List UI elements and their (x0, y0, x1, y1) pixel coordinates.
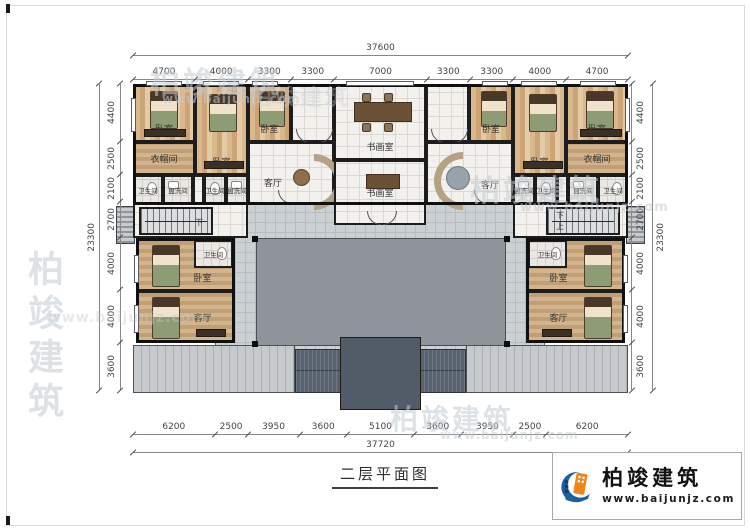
room-label: 盥洗间 (514, 185, 534, 195)
room-living: 客厅 (248, 142, 334, 205)
dim-segment: 2100 (103, 175, 120, 203)
dim-segment: 4400 (632, 84, 649, 142)
dim-value: 23300 (656, 223, 666, 252)
dim-value: 2100 (107, 177, 117, 200)
dim-bottom-segments: 620025003950360051003600395025006200 (133, 419, 628, 435)
window-icon (252, 81, 278, 86)
room-living: 客厅 (526, 291, 625, 343)
window-icon (203, 81, 239, 86)
bed-icon (152, 245, 180, 287)
chair-icon (362, 93, 371, 102)
dim-left-segments: 4400250021002700400040003600 (103, 84, 121, 390)
door-arc-icon (431, 129, 445, 143)
room-bedroom: 卧室 (195, 84, 248, 175)
corner-mark (6, 516, 10, 525)
dim-right-segments: 4400250021002700400040003600 (631, 84, 649, 390)
desk-icon (354, 102, 412, 122)
room-bedroom: 卧室 (133, 84, 195, 142)
dim-value: 37720 (366, 440, 395, 452)
room-bathroom: 卫生间 (528, 240, 567, 268)
room-art-studio: 书画室 (334, 160, 426, 225)
dim-value: 2100 (636, 177, 646, 200)
column-dot (504, 236, 510, 242)
table-icon (293, 169, 310, 186)
column-dot (252, 236, 258, 242)
room-label: 卫生间 (538, 249, 558, 259)
dim-value: 2500 (518, 422, 541, 432)
door-arc-icon (319, 129, 333, 143)
dim-segment: 6200 (546, 419, 628, 434)
dim-value: 6200 (162, 422, 185, 432)
courtyard (256, 238, 506, 346)
window-icon (346, 81, 414, 86)
room-bedroom: 卧室 (469, 84, 513, 142)
window-icon (482, 81, 508, 86)
tv-cabinet-icon (580, 129, 622, 137)
dim-segment: 2500 (513, 419, 546, 434)
dim-segment: 3300 (248, 62, 291, 79)
room-label: 卧室 (549, 271, 567, 284)
dim-value: 3600 (312, 422, 335, 432)
dim-top-segments: 470040003300330070003300330040004700 (133, 62, 628, 80)
room-bathroom: 卫生间 (598, 175, 628, 205)
hall-cell (557, 175, 568, 205)
floor-plan-sheet: 柏竣建筑 www.baijunjz.com 柏竣建筑 柏竣建筑 www.baij… (0, 0, 750, 530)
dim-value: 3300 (437, 67, 460, 77)
dim-segment: 4000 (632, 238, 649, 291)
room-label: 卫生间 (536, 185, 556, 195)
stairs-right: 下 上 (546, 207, 620, 235)
room-label: 盥洗间 (227, 185, 247, 195)
dim-right-total: 23300 (652, 84, 668, 390)
dim-value: 3300 (480, 67, 503, 77)
bed-icon (584, 297, 612, 339)
dim-value: 3950 (262, 422, 285, 432)
door-arc-icon (296, 129, 310, 143)
dim-value: 4400 (107, 101, 117, 124)
dim-segment: 3600 (632, 343, 649, 390)
terrace-right (466, 345, 628, 393)
room-washroom: 盥洗间 (513, 175, 535, 205)
bed-icon (209, 94, 237, 132)
chair-icon (384, 93, 393, 102)
room-bathroom: 卫生间 (535, 175, 557, 205)
dim-value: 2700 (107, 208, 117, 231)
dim-segment: 3300 (470, 62, 513, 79)
logo-brand: 柏竣建筑 (602, 467, 735, 490)
dresser-icon (523, 161, 563, 169)
dim-segment: 4000 (513, 62, 566, 79)
chair-icon (362, 123, 371, 132)
dim-segment: 4700 (133, 62, 195, 79)
dim-value: 4000 (636, 252, 646, 275)
room-washroom: 盥洗间 (226, 175, 248, 205)
dim-value: 23300 (87, 223, 97, 252)
dim-segment: 3950 (248, 419, 300, 434)
dim-segment: 6200 (133, 419, 215, 434)
bed-icon (586, 91, 614, 129)
dim-value: 4000 (107, 305, 117, 328)
dim-value: 3300 (301, 67, 324, 77)
living-room-entry (291, 84, 334, 142)
dim-segment: 2700 (632, 202, 649, 237)
door-arc-icon (367, 211, 381, 225)
dim-value: 4400 (636, 101, 646, 124)
window-icon (134, 305, 139, 333)
door-arc-icon (454, 129, 468, 143)
logo-text: 柏竣建筑 www.baijunjz.com (602, 467, 735, 504)
dim-value: 5100 (369, 422, 392, 432)
dim-segment: 3600 (103, 343, 120, 390)
room-label: 卫生间 (603, 185, 623, 195)
dim-segment: 5100 (347, 419, 414, 434)
room-washroom: 盥洗间 (568, 175, 598, 205)
column-dot (504, 341, 510, 347)
dim-value: 3300 (258, 67, 281, 77)
room-cloakroom: 衣帽间 (566, 142, 628, 175)
dim-value: 3950 (476, 422, 499, 432)
dim-segment: 7000 (334, 62, 426, 79)
company-logo: 柏竣建筑 www.baijunjz.com (552, 452, 742, 520)
dim-value: 3600 (107, 355, 117, 378)
room-label: 盥洗间 (168, 185, 188, 195)
dresser-icon (542, 329, 572, 337)
desk-icon (366, 174, 400, 189)
dim-bottom-total: 37720 (133, 437, 628, 453)
stairs-label: 下 (195, 217, 203, 228)
room-living: 客厅 (426, 142, 513, 205)
bed-icon (584, 245, 612, 287)
dresser-icon (204, 161, 244, 169)
room-bathroom: 卫生间 (204, 175, 226, 205)
stairs-label: 下 (556, 210, 564, 221)
room-bedroom: 卧室 (513, 84, 566, 175)
dim-value: 2500 (107, 147, 117, 170)
dim-segment: 3300 (291, 62, 334, 79)
door-arc-icon (383, 211, 397, 225)
drawing-title: 二层平面图 (280, 463, 490, 489)
window-icon (134, 255, 139, 283)
column-dot (252, 341, 258, 347)
dim-segment: 2500 (632, 142, 649, 175)
window-icon (623, 305, 628, 333)
window-icon (131, 98, 136, 132)
room-label: 卫生间 (204, 249, 224, 259)
chair-icon (384, 123, 393, 132)
room-living: 客厅 (136, 291, 235, 343)
drawing-title-text: 二层平面图 (332, 463, 438, 489)
dim-segment: 3950 (461, 419, 513, 434)
window-icon (625, 98, 630, 132)
door-arc-icon (278, 190, 292, 204)
room-washroom: 盥洗间 (163, 175, 193, 205)
dim-top-total: 37600 (133, 40, 628, 56)
room-label: 客厅 (549, 311, 567, 324)
dim-value: 2500 (220, 422, 243, 432)
window-icon (580, 81, 616, 86)
room-label: 客厅 (193, 311, 211, 324)
room-cloakroom: 衣帽间 (133, 142, 195, 175)
dim-segment: 2700 (103, 202, 120, 237)
dim-segment: 3600 (414, 419, 461, 434)
dim-segment: 4400 (103, 84, 120, 142)
room-label: 衣帽间 (583, 152, 610, 165)
dim-segment: 2500 (103, 142, 120, 175)
dim-value: 4000 (636, 305, 646, 328)
dim-value: 37600 (366, 43, 395, 55)
stairs-left: 下 (139, 207, 213, 235)
logo-url: www.baijunjz.com (602, 493, 735, 505)
window-icon (146, 81, 182, 86)
bed-icon (529, 94, 557, 132)
room-bathroom: 卫生间 (194, 240, 233, 268)
living-room-entry (426, 84, 469, 142)
bed-icon (150, 91, 178, 129)
room-art-studio: 书画室 (334, 84, 426, 160)
terrace-left (133, 345, 295, 393)
rug-icon (446, 166, 470, 190)
dim-value: 4000 (107, 252, 117, 275)
dim-value: 7000 (369, 67, 392, 77)
room-label: 卫生间 (205, 185, 225, 195)
bed-icon (481, 91, 507, 127)
dim-value: 4000 (210, 67, 233, 77)
stairs-label: 上 (556, 221, 564, 232)
hall-cell (193, 175, 204, 205)
dim-value: 4700 (152, 67, 175, 77)
dim-segment: 3600 (300, 419, 347, 434)
dim-segment: 4000 (103, 238, 120, 291)
room-label: 盥洗间 (573, 185, 593, 195)
dim-value: 4700 (586, 67, 609, 77)
tv-cabinet-icon (144, 129, 186, 137)
bed-icon (152, 297, 180, 339)
dim-value: 3600 (426, 422, 449, 432)
dim-segment: 4700 (566, 62, 628, 79)
room-label: 书画室 (366, 140, 393, 153)
window-icon (623, 255, 628, 283)
corner-mark (6, 4, 10, 13)
dresser-icon (196, 329, 226, 337)
room-label: 客厅 (264, 176, 282, 189)
room-label: 衣帽间 (150, 152, 177, 165)
room-label: 卧室 (193, 271, 211, 284)
dim-segment: 2500 (215, 419, 248, 434)
room-bedroom: 卧室 (248, 84, 291, 142)
room-label: 卫生间 (138, 185, 158, 195)
dim-value: 6200 (576, 422, 599, 432)
dim-value: 2700 (636, 208, 646, 231)
dim-segment: 4000 (103, 290, 120, 343)
room-bathroom: 卫生间 (133, 175, 163, 205)
dim-segment: 3300 (427, 62, 470, 79)
bed-icon (259, 91, 285, 127)
dim-segment: 4000 (195, 62, 248, 79)
logo-icon (559, 460, 596, 512)
gate-roof-center (340, 337, 421, 410)
room-bedroom: 卧室 (566, 84, 628, 142)
dim-value: 2500 (636, 147, 646, 170)
dim-left-total: 23300 (84, 84, 100, 390)
window-icon (521, 81, 557, 86)
dim-value: 3600 (636, 355, 646, 378)
dim-value: 4000 (528, 67, 551, 77)
dim-segment: 4000 (632, 290, 649, 343)
